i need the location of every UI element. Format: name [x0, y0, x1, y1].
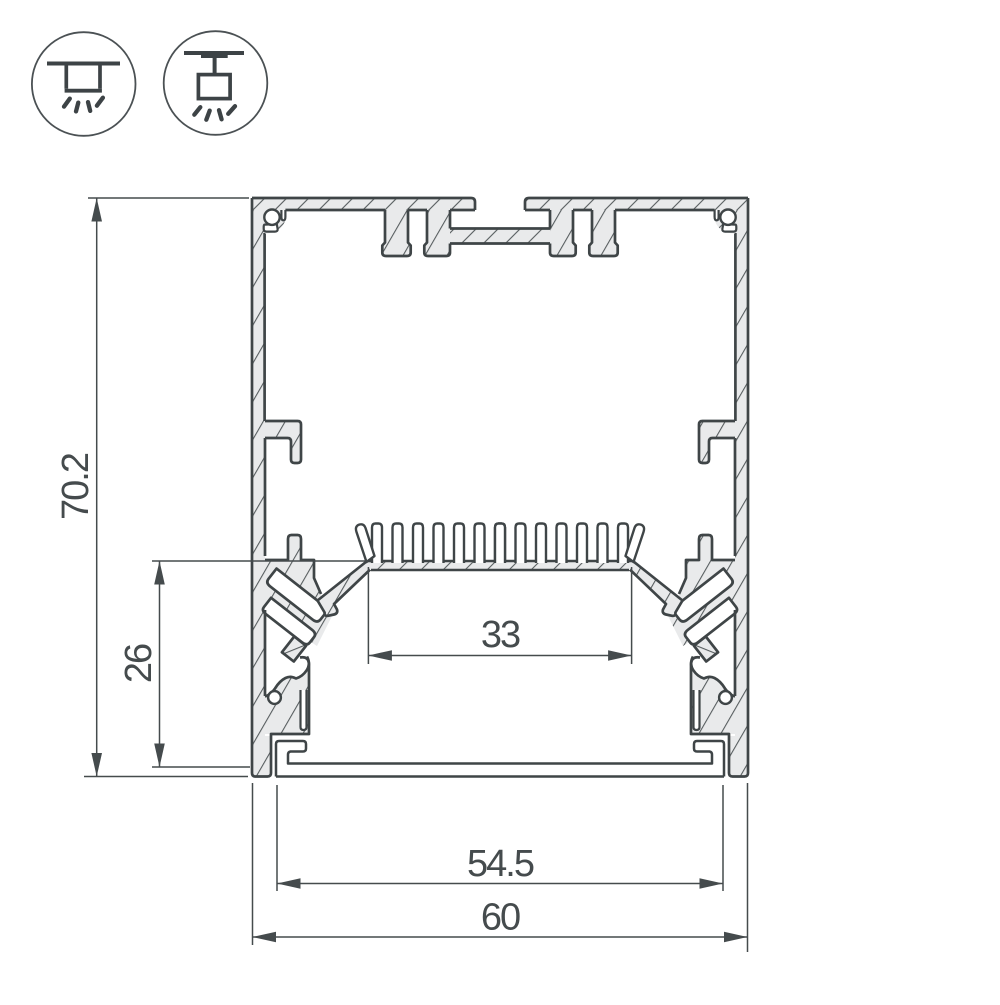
svg-text:33: 33 [481, 614, 520, 656]
svg-text:70.2: 70.2 [55, 453, 97, 520]
svg-text:26: 26 [118, 644, 160, 683]
svg-text:54.5: 54.5 [467, 843, 534, 885]
svg-text:60: 60 [481, 897, 520, 939]
